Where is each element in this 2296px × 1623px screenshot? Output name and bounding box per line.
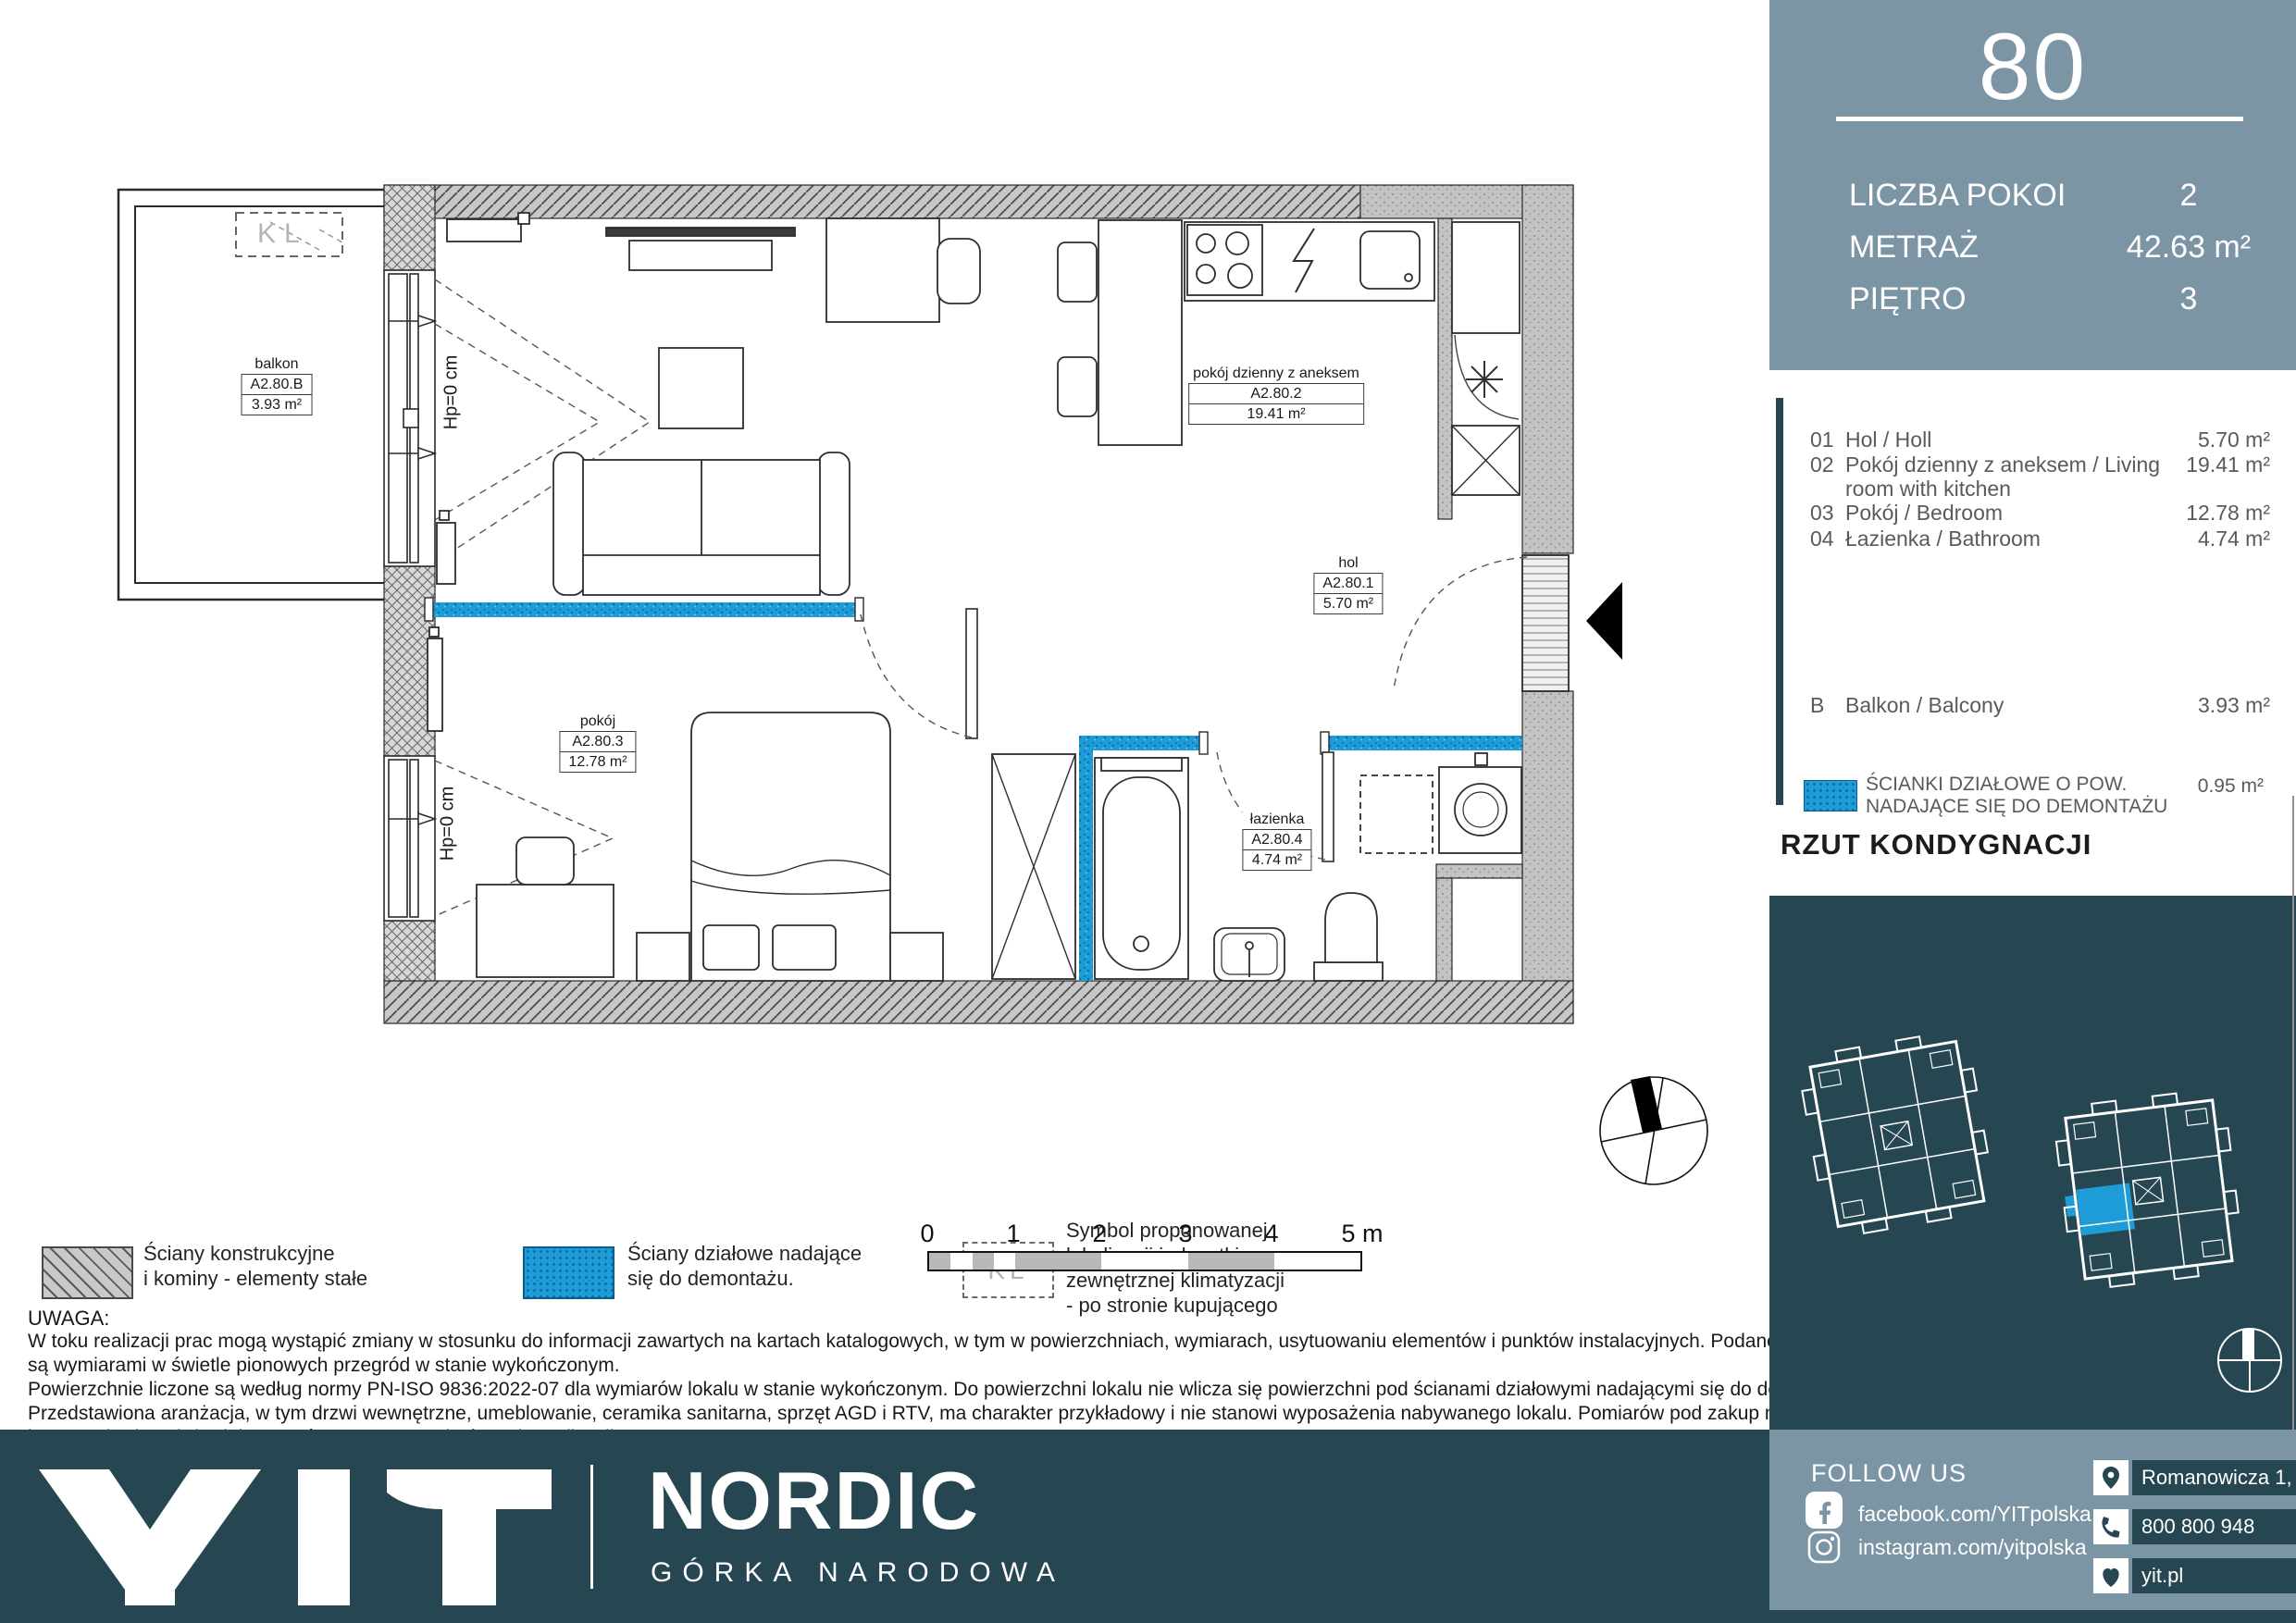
footer-brand-band: NORDIC GÓRKA NARODOWA	[0, 1430, 1769, 1623]
unit-info-panel: 80 LICZBA POKOI 2 METRAŻ 42.63 m² PIĘTRO…	[1769, 0, 2296, 370]
opening-indicators	[435, 279, 650, 916]
follow-us-label: FOLLOW US	[1811, 1459, 1967, 1488]
unit-number: 80	[1769, 13, 2296, 121]
legend-structural-text: Ściany konstrukcyjne i kominy - elementy…	[143, 1241, 367, 1291]
room-row-name2: room with kitchen	[1845, 477, 2011, 502]
footer-bottom-strip	[1769, 1610, 2296, 1623]
compass-icon	[1600, 1076, 1707, 1184]
stat-label-area: METRAŻ	[1849, 229, 1979, 266]
stat-value-rooms: 2	[2110, 178, 2267, 214]
room-row-area: 12.78 m²	[2186, 501, 2270, 526]
room-row-num: 02	[1810, 452, 1834, 477]
instagram-handle[interactable]: instagram.com/yitpolska	[1858, 1535, 2087, 1560]
ac-snowflake-icon	[1466, 361, 1503, 398]
room-row-name: Łazienka / Bathroom	[1845, 527, 2041, 551]
room-row-area: 5.70 m²	[2198, 427, 2270, 452]
room-row-num: 03	[1810, 501, 1834, 526]
room-list-accent-bar	[1776, 398, 1783, 805]
stat-label-floor: PIĘTRO	[1849, 281, 1967, 317]
room-label-hall: hol A2.80.1 5.70 m²	[1313, 553, 1383, 614]
facebook-icon	[1805, 1491, 1843, 1530]
balcony-row-area: 3.93 m²	[2198, 693, 2270, 718]
scale-tick-3: 3	[1178, 1220, 1192, 1248]
footer-divider	[590, 1465, 593, 1589]
partition-area: 0.95 m²	[2198, 775, 2264, 798]
scale-tick-2: 2	[1092, 1220, 1106, 1248]
section-title: RZUT KONDYGNACJI	[1781, 828, 2091, 861]
instagram-icon	[1806, 1530, 1842, 1565]
address-bar: Romanowicza 1, Kraków	[2132, 1460, 2296, 1495]
room-row-area: 19.41 m²	[2186, 452, 2270, 477]
room-label-bathroom: łazienka A2.80.4 4.74 m²	[1242, 810, 1311, 871]
key-plan-svg	[1769, 896, 2296, 1430]
stat-value-area: 42.63 m²	[2110, 229, 2267, 266]
unit-divider	[1836, 117, 2243, 121]
brand-name: NORDIC	[648, 1454, 980, 1548]
scale-tick-5: 5 m	[1341, 1220, 1383, 1248]
brand-subname: GÓRKA NARODOWA	[651, 1557, 1065, 1589]
legend-swatch-structural	[42, 1246, 133, 1299]
floor-plan-svg	[0, 0, 1769, 1430]
yit-logo	[37, 1465, 555, 1608]
stat-label-rooms: LICZBA POKOI	[1849, 178, 2066, 214]
location-tile	[2093, 1460, 2128, 1495]
kl-plan-label: KL	[257, 218, 308, 250]
highlighted-unit	[2076, 1183, 2135, 1236]
partition-swatch	[1804, 780, 1857, 811]
room-row-num: 01	[1810, 427, 1834, 452]
room-row-area: 4.74 m²	[2198, 527, 2270, 551]
room-row-num: 04	[1810, 527, 1834, 551]
room-row-name: Hol / Holl	[1845, 427, 1931, 452]
facebook-handle[interactable]: facebook.com/YITpolska	[1858, 1502, 2091, 1527]
room-label-bedroom: pokój A2.80.3 12.78 m²	[559, 712, 636, 773]
catalog-page: KL balkon A2.80.B 3.93 m² pokój dzienny …	[0, 0, 2296, 1623]
north-compass-icon	[2218, 1329, 2281, 1392]
footer-contact-band: FOLLOW US facebook.com/YITpolska instagr…	[1769, 1430, 2296, 1623]
bedroom-furniture	[428, 627, 1075, 981]
key-plan-building-b	[2053, 1087, 2246, 1291]
legend-demountable-text: Ściany działowe nadające się do demontaż…	[627, 1241, 862, 1291]
scale-tick-4: 4	[1264, 1220, 1278, 1248]
phone-tile	[2093, 1509, 2128, 1544]
website-tile	[2093, 1558, 2128, 1593]
page-edge-line	[2292, 796, 2294, 1434]
room-label-living: pokój dzienny z aneksem A2.80.2 19.41 m²	[1188, 364, 1364, 425]
website-bar[interactable]: yit.pl	[2132, 1558, 2296, 1593]
phone-icon	[2093, 1509, 2128, 1544]
key-plan-panel	[1769, 896, 2296, 1430]
scale-tick-0: 0	[920, 1220, 934, 1248]
key-plan-building-a	[1796, 1028, 1998, 1239]
stat-value-floor: 3	[2110, 281, 2267, 317]
partition-note: ŚCIANKI DZIAŁOWE O POW. NADAJĄCE SIĘ DO …	[1866, 774, 2167, 818]
hp-label-living-window: Hp=0 cm	[441, 355, 463, 430]
room-row-name: Pokój dzienny z aneksem / Living	[1845, 452, 2160, 477]
heart-icon	[2093, 1558, 2128, 1593]
legend-swatch-demountable	[523, 1246, 614, 1299]
room-label-balcony: balkon A2.80.B 3.93 m²	[242, 354, 313, 415]
living-room-furniture	[437, 213, 980, 595]
phone-bar: 800 800 948	[2132, 1509, 2296, 1544]
hp-label-bedroom-window: Hp=0 cm	[438, 787, 459, 861]
location-pin-icon	[2093, 1460, 2128, 1495]
scale-tick-1: 1	[1006, 1220, 1020, 1248]
balcony-row-num: B	[1810, 693, 1824, 718]
scale-bar	[927, 1251, 1362, 1271]
uwaga-title: UWAGA:	[28, 1307, 109, 1331]
room-row-name: Pokój / Bedroom	[1845, 501, 2003, 526]
balcony-row-name: Balkon / Balcony	[1845, 693, 2004, 718]
entrance-arrow	[1586, 582, 1622, 660]
